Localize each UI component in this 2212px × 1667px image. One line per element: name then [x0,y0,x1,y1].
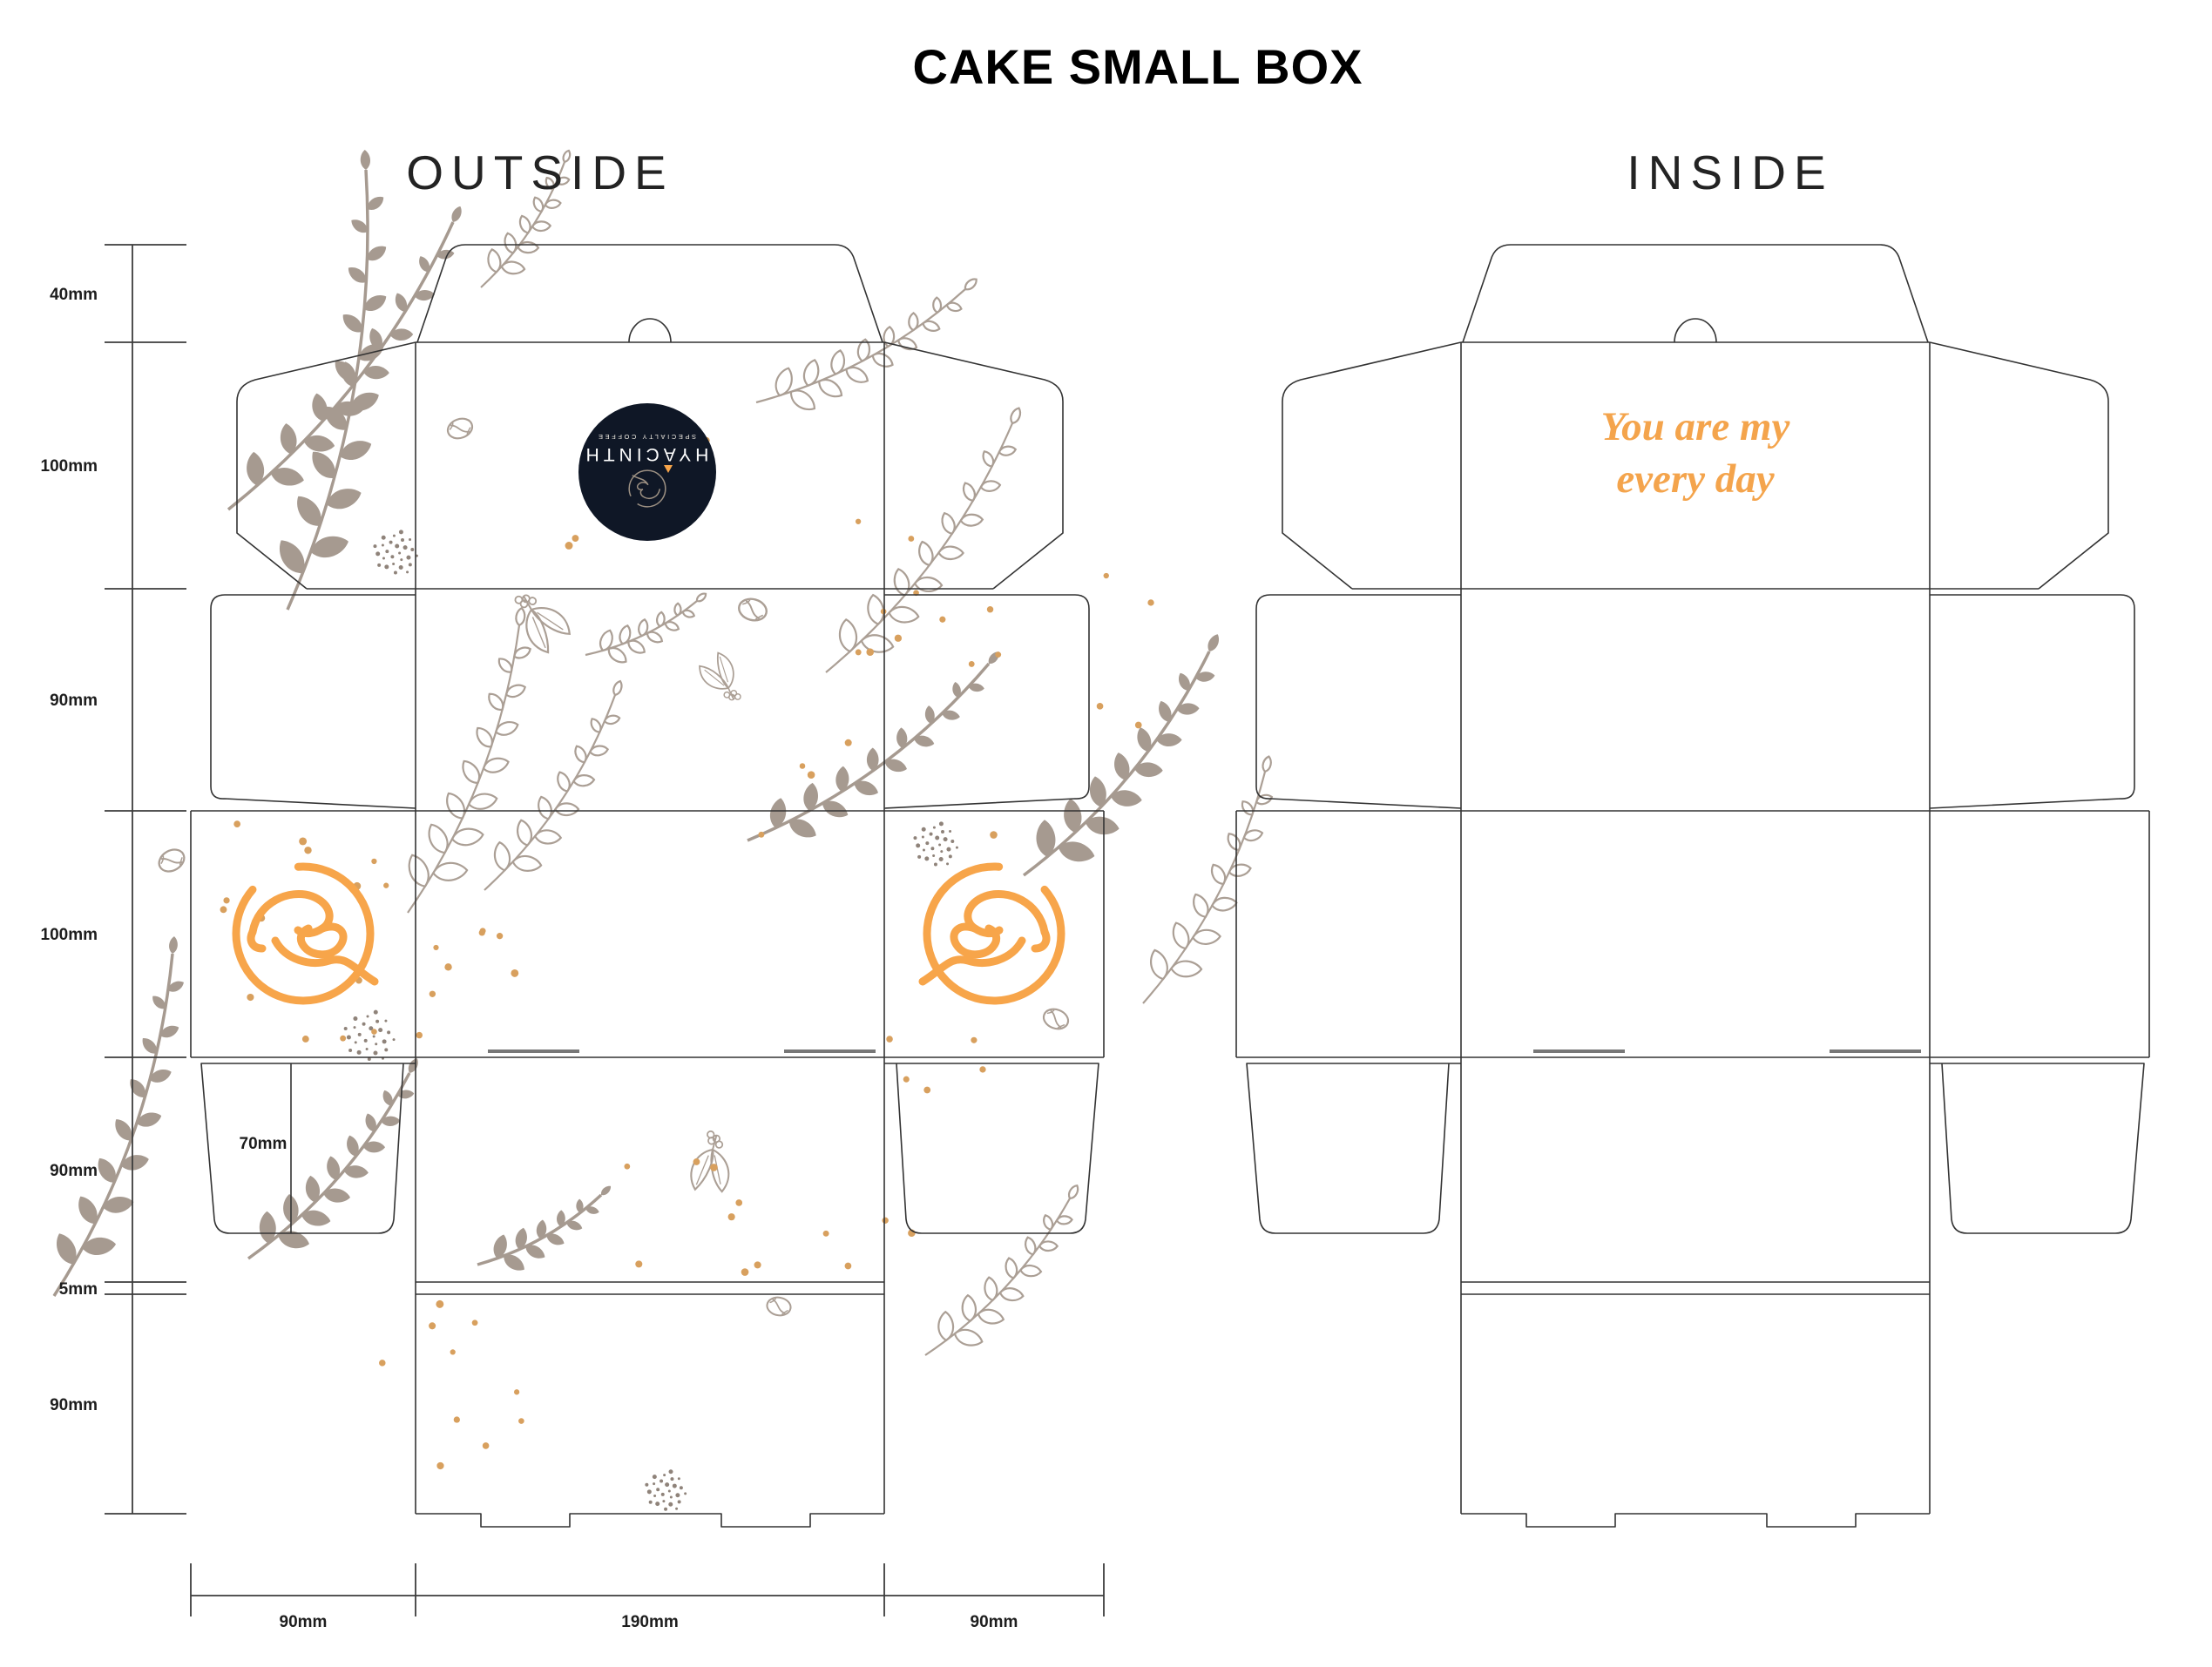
dieline-line-layer [191,245,2149,1527]
quote-line-1: You are my [1601,401,1790,453]
orange-dot-scatter [886,1036,985,1093]
stipple-cluster [913,821,957,866]
inside-quote: You are my every day [1601,401,1790,505]
brand-tagline: SPECIALTY COFFEE [596,434,698,442]
brand-name: HYACINTH [582,444,714,465]
dieline-canvas: 40mm100mm90mm100mm90mm5mm90mm90mm190mm90… [0,0,2212,1667]
coffee-bean-icon [1041,1006,1071,1032]
brand-badge: HYACINTH SPECIALTY COFFEE [578,403,716,541]
outline-leaf-branch [826,407,1023,672]
left-ruler-label: 90mm [50,1396,98,1414]
bottom-ruler: 90mm190mm90mm [191,1563,1104,1631]
orange-dot-scatter [624,1158,915,1276]
leaf-decor-layer [51,150,1273,1511]
hyacinth-bird-logo [236,867,375,1001]
leaf-sprig-icon [696,650,747,709]
orange-dot-scatter [758,519,1001,839]
bird-mark-bird [632,476,660,499]
outside-view-header: OUTSIDE [406,145,673,200]
left-ruler-label: 90mm [50,692,98,710]
solid-leaf-branch [273,150,389,610]
page-title: CAKE SMALL BOX [913,38,1363,95]
bird-mark-icon [626,468,669,511]
orange-dot-scatter [1097,573,1154,729]
brand-a-accent [664,465,673,473]
coffee-bean-icon [766,1296,792,1318]
left-ruler-label: 5mm [59,1280,98,1299]
leaf-sprig-icon [509,582,575,657]
stipple-cluster [645,1469,687,1511]
left-ruler-label: 40mm [50,286,98,304]
coffee-bean-icon [736,596,768,623]
outline-leaf-branch [404,608,532,913]
outline-leaf-branch [925,1184,1080,1355]
solid-leaf-branch [51,936,186,1296]
inner-flap-label: 70mm [240,1135,287,1153]
bottom-ruler-label: 190mm [621,1613,679,1631]
left-ruler-label: 100mm [41,457,98,476]
outline-leaf-branch [1143,755,1273,1003]
solid-leaf-branch [228,205,464,510]
stipple-cluster [344,1010,396,1061]
solid-leaf-branch [248,1056,421,1259]
stipple-cluster [373,530,417,574]
orange-dot-scatter [379,1300,524,1469]
hyacinth-bird-logo [923,867,1061,1001]
coffee-bean-icon [155,846,188,876]
solid-leaf-branch [747,649,1002,842]
bottom-ruler-label: 90mm [971,1613,1018,1631]
solid-leaf-branch [1024,632,1222,875]
left-ruler-label: 100mm [41,926,98,944]
inside-view-header: INSIDE [1627,145,1833,200]
page: 40mm100mm90mm100mm90mm5mm90mm90mm190mm90… [0,0,2212,1667]
coffee-bean-icon [445,415,475,442]
quote-line-2: every day [1601,453,1790,505]
bottom-ruler-label: 90mm [280,1613,328,1631]
orange-dot-scatter [416,928,519,1038]
outline-leaf-branch [484,680,624,890]
left-ruler: 40mm100mm90mm100mm90mm5mm90mm [41,245,187,1514]
measurement-ruler-layer: 40mm100mm90mm100mm90mm5mm90mm90mm190mm90… [41,245,1105,1631]
outline-leaf-branch [585,591,707,665]
left-ruler-label: 90mm [50,1162,98,1180]
solid-leaf-branch [477,1184,612,1275]
